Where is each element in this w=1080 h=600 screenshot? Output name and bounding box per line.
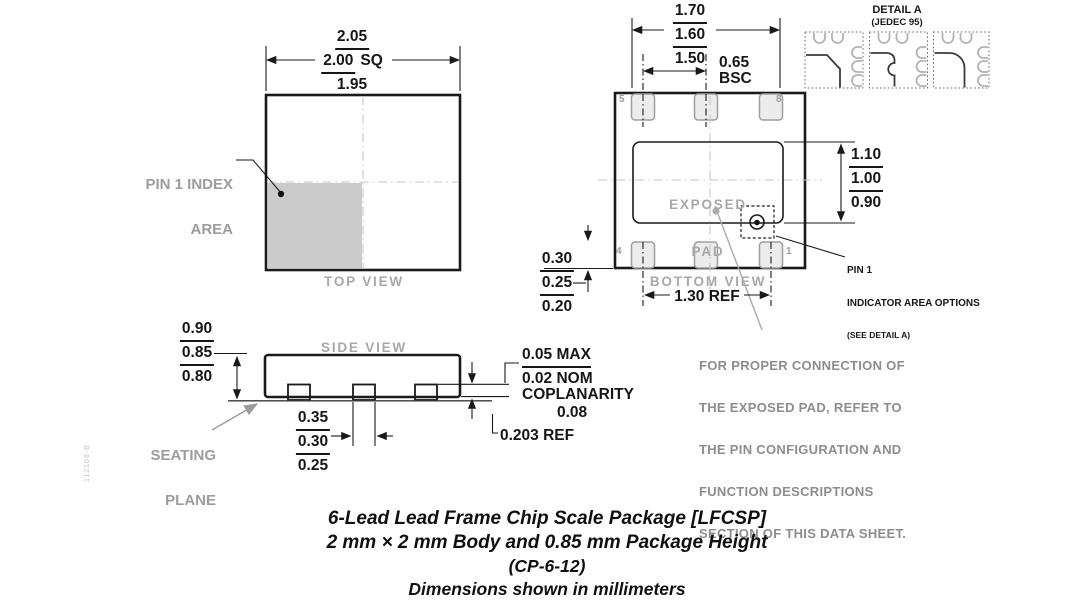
pin-number-bottom-right: 1 — [786, 246, 792, 257]
exposed-pad-label: EXPOSED PAD — [669, 166, 747, 275]
side-view-body — [265, 355, 460, 397]
package-outline-drawing: 2.05 2.00 SQ 1.95 PIN 1 INDEX AREA TOP V… — [0, 0, 1080, 600]
note-line: THE EXPOSED PAD, REFER TO — [699, 401, 906, 415]
exposed-pad-label-line1: EXPOSED — [669, 197, 747, 213]
side-view-label: SIDE VIEW — [321, 340, 407, 355]
height-dims: 0.90 0.85 0.80 — [180, 318, 214, 388]
pad-width-dims: 0.30 0.25 0.20 — [540, 248, 574, 318]
pin1-index-label: PIN 1 INDEX AREA — [120, 147, 233, 252]
dim-value: 0.90 — [180, 318, 214, 342]
note-line: FUNCTION DESCRIPTIONS — [699, 485, 906, 499]
dim-value: 1.50 — [673, 48, 707, 70]
body-width-dims: 1.70 1.60 1.50 — [673, 0, 707, 70]
dim-value: 1.00 — [849, 168, 883, 192]
seating-plane-line2: PLANE — [128, 493, 216, 508]
top-view-size-dims: 2.05 2.00 SQ 1.95 — [321, 26, 383, 96]
detail-a-subtitle: (JEDEC 95) — [871, 17, 922, 28]
pitch-dim: 0.65 BSC — [719, 55, 752, 86]
seating-plane-line1: SEATING — [128, 448, 216, 463]
dim-value: 2.05 — [335, 26, 369, 50]
lead-width-dims: 0.35 0.30 0.25 — [296, 407, 330, 477]
pad-span-ref: 1.30 REF — [674, 286, 739, 308]
top-view-label: TOP VIEW — [324, 274, 404, 289]
dim-suffix: SQ — [355, 50, 382, 72]
dim-value: 0.20 — [540, 296, 574, 318]
note-line: THE PIN CONFIGURATION AND — [699, 443, 906, 457]
dim-row: 2.00 SQ — [321, 50, 383, 74]
pin1-indicator-dot — [754, 220, 760, 226]
dim-value: 0.85 — [180, 342, 214, 366]
dim-value: 0.25 — [296, 455, 330, 477]
pin-number-bottom-left: 4 — [616, 246, 622, 257]
dim-value: 0.80 — [180, 366, 214, 388]
package-title-line3: (CP-6-12) — [509, 558, 586, 576]
side-view-linework — [212, 354, 519, 447]
dim-value: 0.65 — [719, 55, 749, 71]
lead-thickness-ref: 0.203 REF — [500, 425, 574, 447]
dim-value: 1.95 — [335, 74, 369, 96]
package-title-line4: Dimensions shown in millimeters — [408, 581, 685, 599]
detail-a-option-2 — [870, 32, 928, 88]
seating-plane-leader — [212, 404, 257, 430]
detail-a-linework — [805, 32, 989, 88]
pin1-index-leader-dot — [278, 191, 284, 197]
dim-unit: BSC — [719, 71, 752, 87]
exposed-pad-label-line2: PAD — [669, 244, 747, 260]
dim-value: 1.70 — [673, 0, 707, 24]
pin1-index-label-line1: PIN 1 INDEX — [120, 177, 233, 192]
dim-value: 0.30 — [296, 431, 330, 455]
dim-value: 2.00 — [321, 50, 355, 74]
exposed-pad-dims: 1.10 1.00 0.90 — [849, 144, 883, 214]
seating-plane-label: SEATING PLANE — [128, 418, 216, 523]
revision-code: 112108-B — [84, 444, 91, 482]
dim-value: 0.05 MAX — [522, 344, 591, 368]
package-title-line2: 2 mm × 2 mm Body and 0.85 mm Package Hei… — [327, 533, 768, 552]
dim-value: 1.10 — [849, 144, 883, 168]
pin1-index-label-line2: AREA — [120, 222, 233, 237]
dim-value: 0.90 — [849, 192, 883, 214]
pin-number-top-left: 5 — [619, 94, 625, 105]
pin1-options-line1: PIN 1 — [847, 265, 980, 276]
coplanarity-value: 0.08 — [557, 402, 587, 424]
detail-a-option-1 — [805, 32, 863, 88]
dim-value: 0.30 — [540, 248, 574, 272]
detail-a-title: DETAIL A — [872, 4, 921, 16]
lead-thickness-bracket — [493, 414, 499, 433]
pin1-options-line2: INDICATOR AREA OPTIONS — [847, 298, 980, 309]
note-line: FOR PROPER CONNECTION OF — [699, 359, 906, 373]
standoff-dim-bracket — [505, 363, 519, 383]
dim-value: 1.60 — [673, 24, 707, 48]
dim-value: 0.25 — [540, 272, 574, 296]
pin-number-top-right: 8 — [776, 94, 782, 105]
dim-value: 0.35 — [296, 407, 330, 431]
package-title-line1: 6-Lead Lead Frame Chip Scale Package [LF… — [328, 509, 766, 528]
